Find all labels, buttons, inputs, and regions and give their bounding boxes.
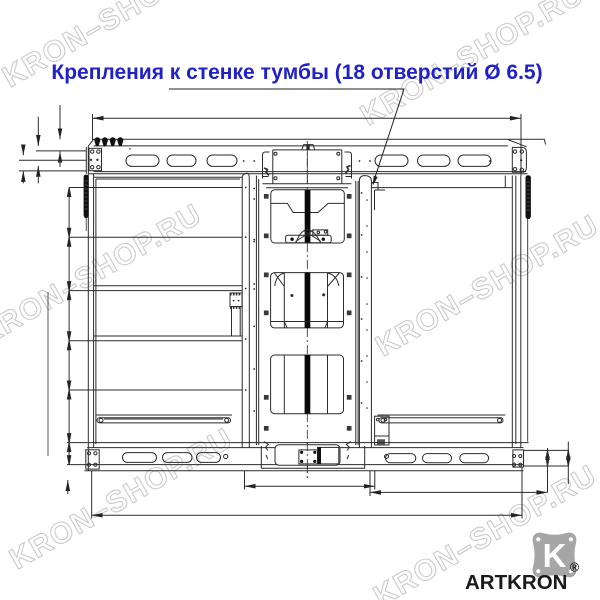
svg-text:®: ®	[570, 561, 580, 575]
svg-text:K: K	[543, 537, 567, 574]
svg-text:Крепления к стенке тумбы (18 о: Крепления к стенке тумбы (18 отверстий Ø…	[51, 61, 542, 84]
svg-text:ARTKRON: ARTKRON	[465, 571, 568, 594]
